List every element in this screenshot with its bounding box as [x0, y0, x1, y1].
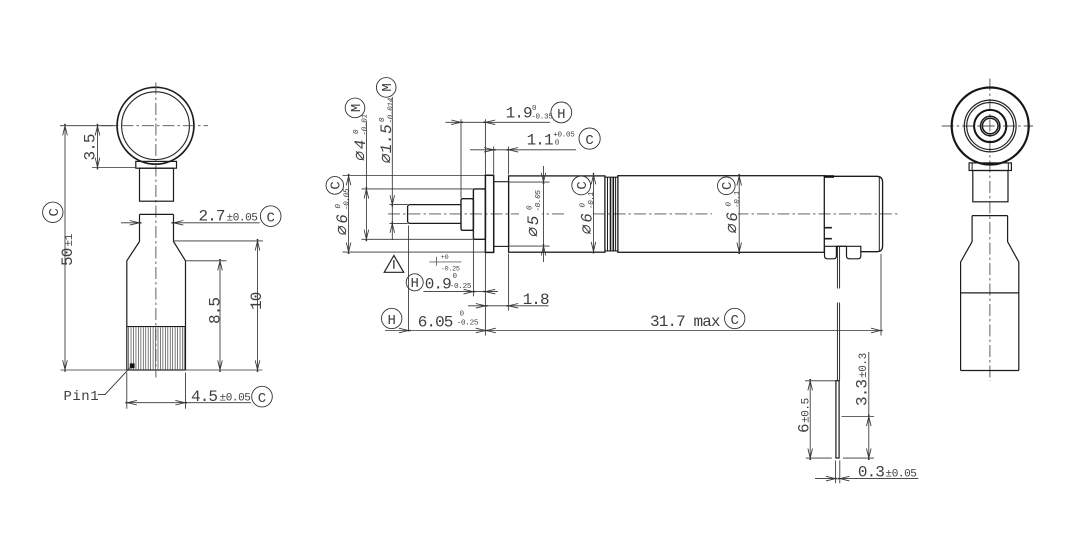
svg-text:H: H — [387, 313, 395, 329]
svg-text:-0.014: -0.014 — [388, 97, 396, 125]
svg-text:⌀4: ⌀4 — [352, 136, 370, 162]
svg-text:C: C — [329, 181, 345, 189]
svg-text:±0.05: ±0.05 — [220, 393, 251, 405]
svg-text:0.3: 0.3 — [858, 464, 884, 482]
svg-text:-0.25: -0.25 — [450, 283, 472, 291]
svg-text:3.3: 3.3 — [853, 380, 871, 406]
svg-text:C: C — [585, 133, 593, 149]
svg-text:H: H — [410, 276, 418, 292]
svg-text:C: C — [720, 182, 736, 190]
svg-text:C: C — [258, 391, 266, 407]
svg-text:M: M — [380, 83, 396, 91]
svg-text:31.7 max: 31.7 max — [650, 313, 720, 331]
svg-text:H: H — [557, 107, 565, 123]
svg-text:C: C — [730, 313, 738, 329]
svg-text:1.1: 1.1 — [527, 132, 553, 150]
svg-text:⌀1.5: ⌀1.5 — [378, 123, 396, 165]
svg-text:50: 50 — [59, 248, 77, 266]
svg-text:+0: +0 — [441, 254, 449, 262]
svg-text:8.5: 8.5 — [207, 298, 225, 324]
svg-text:-0.25: -0.25 — [457, 320, 479, 328]
svg-text:0: 0 — [532, 105, 537, 113]
svg-text:4.5: 4.5 — [191, 388, 217, 406]
svg-text:C: C — [266, 211, 274, 227]
svg-text:C: C — [575, 181, 591, 189]
svg-text:-0.35: -0.35 — [531, 113, 553, 121]
svg-text:10: 10 — [248, 292, 266, 310]
svg-text:⌀6: ⌀6 — [334, 211, 352, 237]
svg-text:0.9: 0.9 — [425, 275, 451, 293]
svg-text:±0.05: ±0.05 — [886, 468, 917, 480]
svg-text:-0.05: -0.05 — [344, 187, 352, 210]
svg-text:±1: ±1 — [64, 233, 76, 246]
svg-text:3.5: 3.5 — [82, 134, 100, 160]
svg-text:-0.01: -0.01 — [362, 113, 370, 136]
svg-text:+0.05: +0.05 — [553, 131, 575, 139]
svg-text:⌀5: ⌀5 — [525, 212, 543, 238]
svg-text:1.8: 1.8 — [523, 291, 549, 309]
svg-text:M: M — [349, 104, 365, 112]
svg-text:±0.3: ±0.3 — [858, 353, 870, 378]
svg-text:0: 0 — [555, 140, 560, 148]
svg-text:C: C — [47, 208, 63, 216]
svg-text:±0.05: ±0.05 — [227, 213, 258, 225]
svg-text:-0.1: -0.1 — [588, 191, 596, 210]
svg-text:±0.5: ±0.5 — [801, 398, 813, 423]
svg-text:-0.25: -0.25 — [441, 265, 460, 273]
svg-text:⌀6: ⌀6 — [578, 210, 596, 236]
svg-text:1.9: 1.9 — [506, 105, 532, 123]
svg-text:⌀6: ⌀6 — [724, 209, 742, 235]
svg-text:0: 0 — [453, 273, 458, 281]
svg-text:Pin1: Pin1 — [64, 389, 100, 405]
svg-text:-0.1: -0.1 — [734, 190, 742, 209]
svg-text:6: 6 — [796, 424, 814, 433]
svg-text:6.05: 6.05 — [418, 314, 453, 332]
svg-text:-0.05: -0.05 — [535, 189, 543, 212]
svg-text:0: 0 — [460, 311, 465, 319]
svg-text:2.7: 2.7 — [199, 208, 225, 226]
